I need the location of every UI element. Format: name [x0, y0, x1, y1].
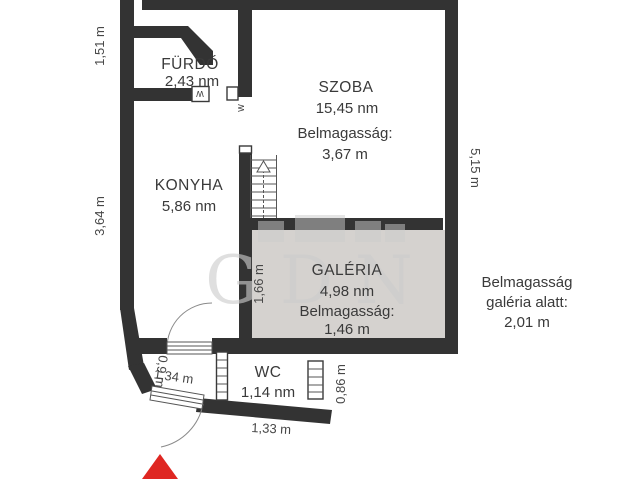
galeria-height: 1,46 m	[324, 321, 370, 338]
wall-left	[120, 0, 134, 310]
wall-top	[142, 0, 458, 10]
wc-window	[308, 361, 323, 399]
staircase	[250, 155, 277, 218]
dim-wc-bottom: 1,33 m	[251, 420, 291, 437]
dim-wc-right: 0,86 m	[333, 364, 348, 404]
szoba-height-label: Belmagasság:	[297, 125, 392, 142]
note-line1: Belmagasság	[482, 274, 573, 291]
dim-galeria-left: 1,66 m	[251, 264, 266, 304]
galeria-name: GALÉRIA	[312, 262, 383, 279]
door-mark-w1-label: W	[196, 89, 204, 98]
szoba-name: SZOBA	[318, 79, 373, 96]
wc-area: 1,14 nm	[241, 384, 295, 401]
szoba-area: 15,45 nm	[316, 100, 379, 117]
dim-hall-door: 0,9 m	[152, 354, 171, 388]
note-line3: 2,01 m	[504, 314, 550, 331]
furdo-area: 2,43 nm	[165, 73, 219, 90]
dim-left-upper: 1,51 m	[92, 26, 107, 66]
room-divider-wall-upper	[238, 0, 252, 97]
hall-top-wall	[134, 338, 167, 354]
floor-plan: W W GD	[0, 0, 640, 480]
konyha-area: 5,86 nm	[162, 198, 216, 215]
furdo-name: FÜRDŐ	[161, 55, 219, 73]
entrance-door	[150, 386, 204, 447]
wc-name: WC	[255, 364, 282, 381]
wall-right	[445, 0, 458, 354]
stair-direction-arrow-icon	[257, 161, 270, 172]
note-line2: galéria alatt:	[486, 294, 568, 311]
bottom-wall	[212, 338, 458, 354]
galeria-height-label: Belmagasság:	[299, 303, 394, 320]
divider-wall-cap	[240, 146, 252, 153]
door-mark-w2-label: W	[237, 104, 246, 112]
wc-door	[217, 352, 228, 400]
konyha-door-leaf	[167, 342, 212, 354]
galeria-area: 4,98 nm	[320, 283, 374, 300]
floor-plan-canvas: W W GD	[0, 0, 640, 480]
dim-left-lower: 3,64 m	[92, 196, 107, 236]
dim-right-side: 5,15 m	[468, 148, 483, 188]
konyha-name: KONYHA	[155, 177, 224, 194]
entrance-arrow-icon	[142, 454, 178, 479]
szoba-height: 3,67 m	[322, 146, 368, 163]
entrance-door-leaf	[150, 386, 204, 409]
